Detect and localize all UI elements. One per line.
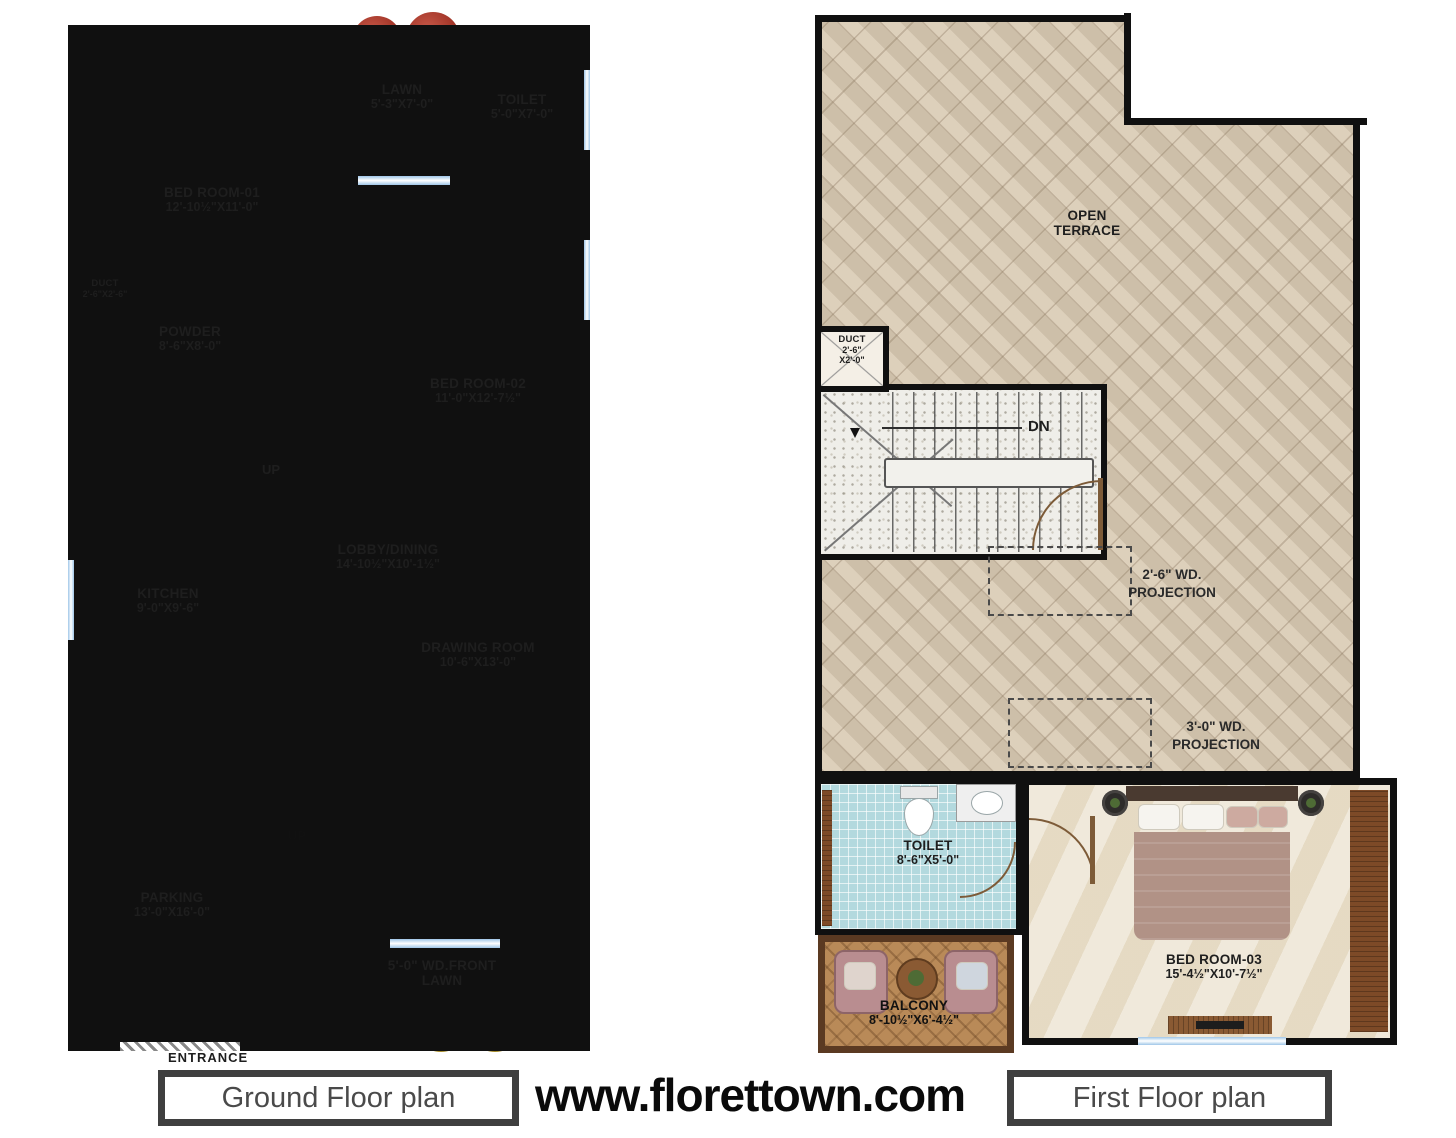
drawing-label: DRAWING ROOM 10'-6"X13'-0" xyxy=(421,640,534,669)
room-name: BALCONY xyxy=(869,998,959,1013)
bedroom3-wardrobe xyxy=(1350,790,1388,1032)
room-dims: 5'-3"X7'-0" xyxy=(371,97,433,111)
room-name: TOILET xyxy=(491,92,553,107)
window-lawn xyxy=(358,176,450,185)
duct-gf-label: DUCT 2'-6"X2'-6" xyxy=(83,278,128,299)
lawn-label: LAWN 5'-3"X7'-0" xyxy=(371,82,433,111)
room-dims: 12'-10½"X11'-0" xyxy=(164,200,260,214)
dn-label: DN xyxy=(1028,418,1050,435)
entrance-label: ENTRANCE xyxy=(168,1050,248,1065)
projection1-label: 2'-6" WD. PROJECTION xyxy=(1128,566,1216,602)
tv xyxy=(1196,1021,1244,1029)
stairwell-door-leaf xyxy=(1098,478,1103,550)
bedroom3-side-table xyxy=(1298,790,1324,816)
room-name: BED ROOM-02 xyxy=(430,376,526,391)
bed3 xyxy=(1132,786,1292,952)
room-dims: 11'-0"X12'-7½" xyxy=(430,391,526,405)
room-name: TERRACE xyxy=(1054,223,1121,238)
bedroom3-side-table xyxy=(1102,790,1128,816)
room-name: PARKING xyxy=(134,890,210,905)
bedroom3-door-leaf xyxy=(1090,816,1095,884)
toilet-ff-basin xyxy=(971,791,1003,815)
projection-text: 3'-0" WD. xyxy=(1172,718,1260,736)
room-dims: 8'-10½"X6'-4½" xyxy=(869,1013,959,1027)
room-name: DRAWING ROOM xyxy=(421,640,534,655)
bedroom3-label: BED ROOM-03 15'-4½"X10'-7½" xyxy=(1165,952,1262,981)
stairwell-stringer xyxy=(884,458,1094,488)
ground-floor-plan-title-box: Ground Floor plan xyxy=(158,1070,519,1126)
bed3-blanket xyxy=(1134,832,1290,940)
room-dims: 8'-6"X5'-0" xyxy=(897,853,959,867)
room-name: LOBBY/DINING xyxy=(336,542,440,557)
window-kitchen xyxy=(68,560,74,640)
projection1-outline xyxy=(988,546,1132,616)
room-dims: 10'-6"X13'-0" xyxy=(421,655,534,669)
room-dims: 2'-6" xyxy=(838,345,865,355)
bedroom3-dresser xyxy=(1168,1016,1272,1034)
room-name: 5'-0" WD.FRONT xyxy=(388,958,496,973)
balcony-label: BALCONY 8'-10½"X6'-4½" xyxy=(869,998,959,1027)
toilet-ff-shelf xyxy=(822,790,832,926)
room-name: BED ROOM-03 xyxy=(1165,952,1262,967)
room-name: DUCT xyxy=(838,334,865,345)
room-name: OPEN xyxy=(1054,208,1121,223)
room-name: TOILET xyxy=(897,838,959,853)
balcony-plant xyxy=(908,970,924,986)
balcony-table xyxy=(896,958,938,1000)
projection-text: PROJECTION xyxy=(1128,584,1216,602)
powder-label: POWDER 8'-6"X8'-0" xyxy=(159,324,221,353)
up1-label: UP xyxy=(262,462,280,477)
balcony-cushion xyxy=(844,962,876,990)
dn-leader-line xyxy=(882,427,1022,429)
window-bedroom3 xyxy=(1138,1037,1286,1045)
first-floor-plan-title-box: First Floor plan xyxy=(1007,1070,1332,1126)
projection-text: 2'-6" WD. xyxy=(1128,566,1216,584)
up2-label: UP xyxy=(288,828,306,843)
window-toilet-gf xyxy=(584,70,590,150)
room-dims: 14'-10½"X10'-1½" xyxy=(336,557,440,571)
room-name: KITCHEN xyxy=(137,586,199,601)
terrace-label: OPEN TERRACE xyxy=(1054,208,1121,238)
terrace-notch xyxy=(1124,13,1367,125)
room-dims: 2'-6"X2'-6" xyxy=(83,289,128,299)
room-dims: 13'-0"X16'-0" xyxy=(134,905,210,919)
bed3-pillow xyxy=(1258,806,1288,828)
room-name: DUCT xyxy=(83,278,128,289)
bed3-pillow xyxy=(1182,804,1224,830)
room-dims: X2'-0" xyxy=(838,355,865,365)
projection-text: PROJECTION xyxy=(1172,736,1260,754)
front-lawn-label: 5'-0" WD.FRONT LAWN xyxy=(388,958,496,988)
room-name: BED ROOM-01 xyxy=(164,185,260,200)
window-bed2 xyxy=(584,240,590,320)
website-watermark: www.florettown.com xyxy=(505,1068,995,1122)
ground-floor-plan-title: Ground Floor plan xyxy=(222,1082,456,1115)
room-dims: 8'-6"X8'-0" xyxy=(159,339,221,353)
duct-ff-label: DUCT 2'-6" X2'-0" xyxy=(838,334,865,365)
wall-bed2-left-top xyxy=(340,197,348,292)
bed3-headboard xyxy=(1126,786,1298,801)
stairs-dn-arrow-icon xyxy=(850,428,860,438)
window-front-lawn xyxy=(390,939,500,948)
first-floor-plan-title: First Floor plan xyxy=(1073,1082,1266,1115)
projection2-label: 3'-0" WD. PROJECTION xyxy=(1172,718,1260,754)
bedroom2-label: BED ROOM-02 11'-0"X12'-7½" xyxy=(430,376,526,405)
floor-plan-canvas: BED ROOM-01 12'-10½"X11'-0" LAWN 5'-3"X7… xyxy=(0,0,1456,1138)
toilet-gf-label: TOILET 5'-0"X7'-0" xyxy=(491,92,553,121)
bed3-pillow xyxy=(1226,806,1258,828)
room-name: LAWN xyxy=(388,973,496,988)
room-dims: 9'-0"X9'-6" xyxy=(137,601,199,615)
toilet-ff-counter xyxy=(956,784,1016,822)
balcony-cushion xyxy=(956,962,988,990)
toilet-ff-label: TOILET 8'-6"X5'-0" xyxy=(897,838,959,867)
bedroom1-label: BED ROOM-01 12'-10½"X11'-0" xyxy=(164,185,260,214)
wall-bed2-left-bottom xyxy=(340,350,348,455)
room-dims: 5'-0"X7'-0" xyxy=(491,107,553,121)
room-name: POWDER xyxy=(159,324,221,339)
room-dims: 15'-4½"X10'-7½" xyxy=(1165,967,1262,981)
room-name: LAWN xyxy=(371,82,433,97)
projection2-outline xyxy=(1008,698,1152,768)
wall-lobby-kitchen xyxy=(262,508,274,715)
kitchen-label: KITCHEN 9'-0"X9'-6" xyxy=(137,586,199,615)
bed3-pillow xyxy=(1138,804,1180,830)
lobby-label: LOBBY/DINING 14'-10½"X10'-1½" xyxy=(336,542,440,571)
parking-label: PARKING 13'-0"X16'-0" xyxy=(134,890,210,919)
